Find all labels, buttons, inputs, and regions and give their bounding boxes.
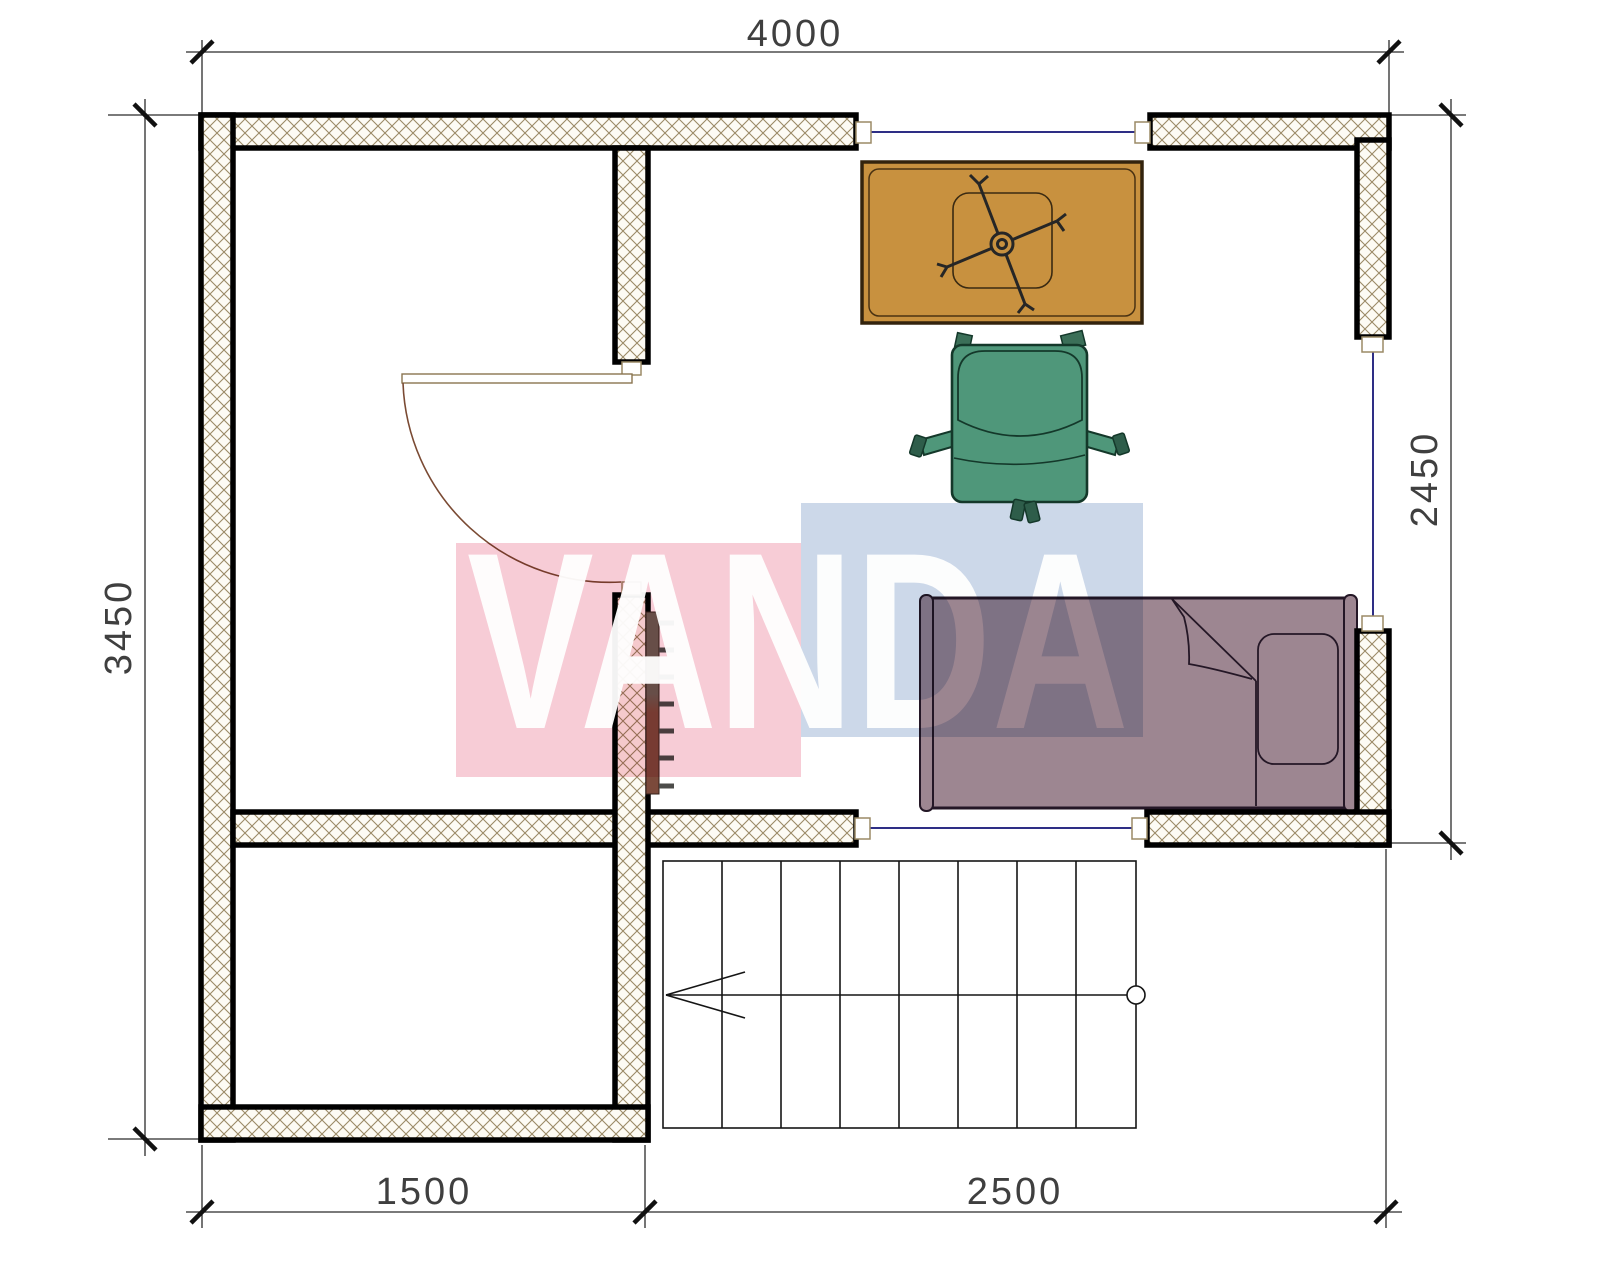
armchair bbox=[909, 331, 1130, 524]
door-jamb-top bbox=[622, 362, 641, 375]
pillow bbox=[1258, 634, 1338, 764]
floor-plan-drawing: 4000 3450 2450 1500 2500 bbox=[0, 0, 1600, 1280]
armchair-body bbox=[952, 345, 1087, 502]
stairs-start-marker bbox=[1127, 986, 1145, 1004]
window-jamb bbox=[856, 122, 871, 143]
window-jamb bbox=[1362, 337, 1383, 352]
dimension-left: 3450 bbox=[98, 99, 201, 1156]
door-leaf bbox=[402, 374, 632, 383]
window-jamb bbox=[1132, 818, 1147, 839]
wall-left bbox=[201, 115, 233, 1140]
window-jamb bbox=[1362, 616, 1383, 631]
bed-footboard bbox=[920, 595, 933, 811]
wall-middle-horizontal bbox=[233, 812, 856, 845]
wall-bottom-right bbox=[1147, 812, 1389, 845]
window-jamb bbox=[855, 818, 870, 839]
wall-interior-vertical-upper bbox=[615, 148, 648, 362]
wall-top-left bbox=[201, 115, 856, 148]
bed-headboard bbox=[1344, 595, 1357, 811]
dimension-label-top: 4000 bbox=[747, 13, 844, 55]
staircase bbox=[663, 861, 1145, 1128]
window-jamb bbox=[1135, 122, 1150, 143]
dimension-label-bottom-right: 2500 bbox=[967, 1171, 1064, 1213]
dimension-label-right: 2450 bbox=[1404, 431, 1446, 528]
floor-plan-page: 4000 3450 2450 1500 2500 bbox=[0, 0, 1600, 1280]
wall-bottom-left bbox=[201, 1107, 648, 1140]
wall-top-right bbox=[1150, 115, 1389, 148]
wall-right-upper bbox=[1357, 140, 1389, 337]
dimension-right: 2450 bbox=[1389, 99, 1466, 860]
dimension-label-bottom-left: 1500 bbox=[376, 1171, 473, 1213]
dimension-label-left: 3450 bbox=[98, 579, 140, 676]
dimension-top: 4000 bbox=[186, 13, 1404, 113]
bed bbox=[920, 595, 1357, 811]
desk bbox=[862, 162, 1142, 323]
